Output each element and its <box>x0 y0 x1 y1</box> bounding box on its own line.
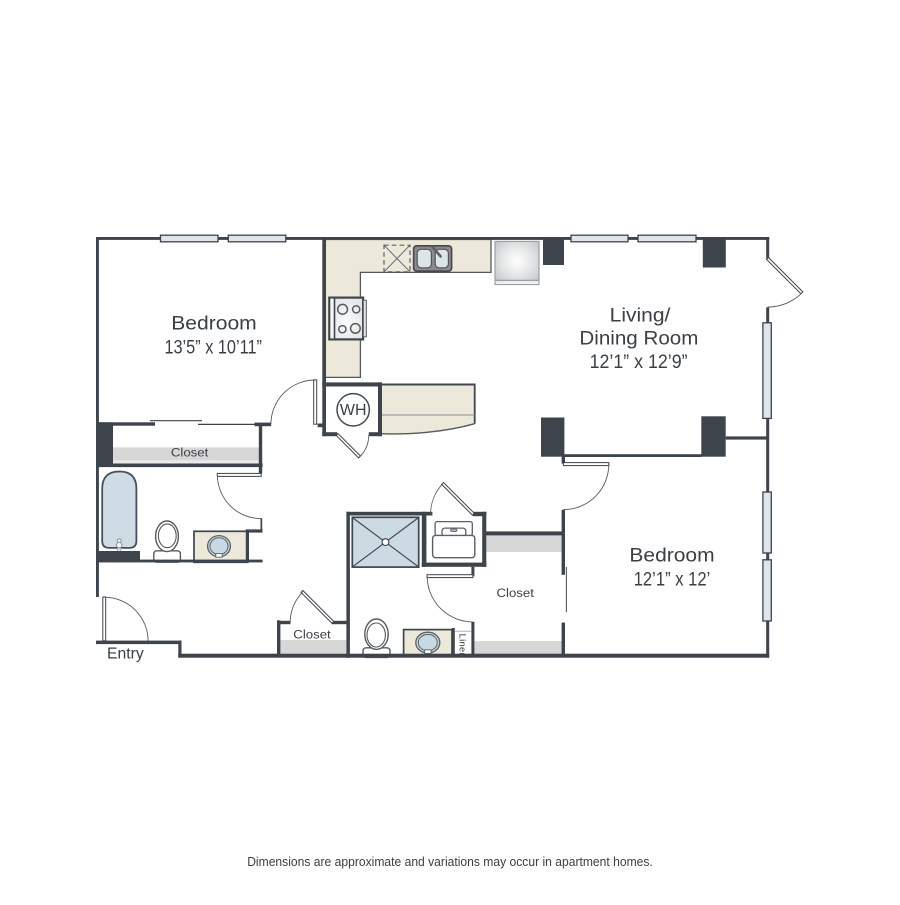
svg-text:Living/: Living/ <box>610 305 671 326</box>
svg-text:WH: WH <box>340 402 367 419</box>
svg-text:Entry: Entry <box>107 646 144 663</box>
svg-text:Closet: Closet <box>293 628 331 642</box>
svg-text:Bedroom: Bedroom <box>629 546 714 567</box>
svg-text:Closet: Closet <box>497 586 535 600</box>
svg-text:Closet: Closet <box>171 445 209 459</box>
svg-text:12’1” x 12’9”: 12’1” x 12’9” <box>590 352 688 373</box>
svg-text:12’1” x 12’: 12’1” x 12’ <box>634 570 711 591</box>
svg-text:Dimensions are approximate and: Dimensions are approximate and variation… <box>247 854 653 869</box>
svg-text:13’5” x 10’11”: 13’5” x 10’11” <box>164 337 262 358</box>
svg-text:Dining Room: Dining Room <box>579 328 698 349</box>
svg-text:Linen: Linen <box>458 634 469 658</box>
svg-text:Bedroom: Bedroom <box>171 314 257 335</box>
